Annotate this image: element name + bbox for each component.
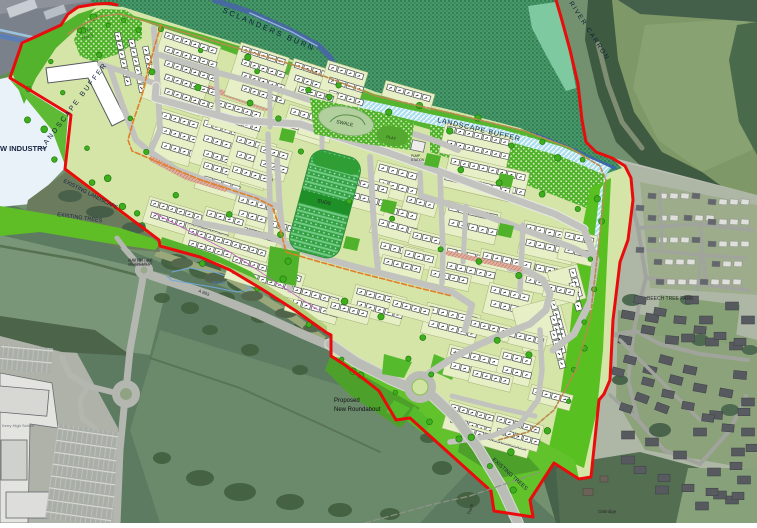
svg-text:Kerry High School: Kerry High School: [2, 423, 34, 428]
svg-text:ROUNDABOUT: ROUNDABOUT: [128, 263, 151, 267]
svg-text:POND: POND: [212, 280, 226, 285]
svg-text:New Roundabout: New Roundabout: [334, 407, 381, 413]
svg-text:STATION: STATION: [411, 158, 425, 162]
svg-text:Proposed: Proposed: [334, 398, 360, 404]
svg-text:Oakridge: Oakridge: [598, 509, 617, 514]
svg-text:BEECH TREE PARK: BEECH TREE PARK: [647, 296, 694, 302]
svg-text:W INDUSTRY: W INDUSTRY: [0, 144, 47, 153]
